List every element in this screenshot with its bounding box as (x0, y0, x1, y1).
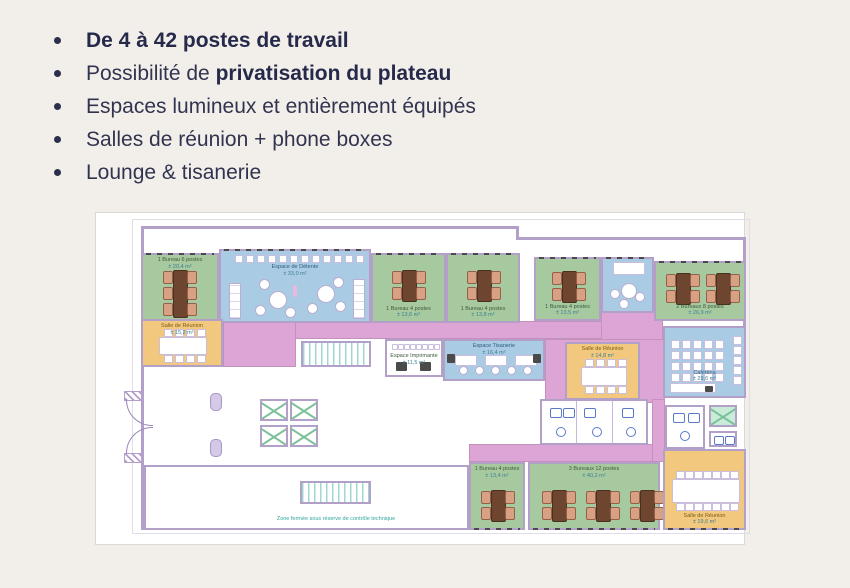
round-table (317, 285, 335, 303)
wall (516, 237, 746, 240)
note-text: Zone fermée sous réserve de contrôle tec… (236, 516, 436, 522)
room-office-4-postes: 1 Bureau 4 postes± 13,8 m² (446, 253, 520, 323)
wall (612, 401, 613, 443)
room-label: 3 Bureaux 12 postes± 40,2 m² (530, 466, 658, 479)
chair (335, 301, 346, 312)
stool (523, 366, 532, 375)
room-label: Cafétéria± 29,6 m² (665, 370, 744, 383)
room-printer: Espace Imprimante± 11,5 m² (385, 339, 443, 377)
floor-plan-image: 1 Bureau 6 postes± 20,4 m² Espace de Dét… (95, 212, 745, 545)
room-label: Espace Tisanerie± 16,4 m² (445, 343, 543, 356)
toilet-icon (688, 413, 700, 423)
cabinet (613, 262, 645, 275)
room-label: 2 Bureaux 8 postes± 26,9 m² (656, 304, 744, 317)
entrance-wall (124, 453, 142, 463)
room-meeting-right: Salle de Réunion± 19,6 m² (663, 449, 746, 530)
bullet-item: De 4 à 42 postes de travail (46, 24, 686, 57)
entrance-door-arc (126, 399, 153, 426)
room-office-6-postes: 1 Bureau 6 postes± 20,4 m² (141, 253, 219, 323)
service-elevator (709, 405, 737, 427)
bullet-item: Espaces lumineux et entièrement équipés (46, 90, 686, 123)
staircase (300, 481, 371, 504)
desk-cluster (542, 488, 576, 524)
desk-cluster (630, 488, 664, 524)
shelf (229, 283, 241, 319)
desk-cluster (666, 271, 700, 307)
elevator (290, 399, 318, 421)
sink-icon (556, 427, 566, 437)
room-label: 1 Bureau 4 postes± 13,8 m² (448, 306, 518, 319)
room-meeting-left: Salle de Réunion± 15,2 m² (141, 319, 223, 367)
desk-cluster (481, 488, 515, 524)
room-lounge-detente: Espace de Détente± 33,0 m² (219, 249, 371, 323)
room-label: 1 Bureau 4 postes± 13,4 m² (471, 466, 523, 479)
room-label: 1 Bureau 4 postes± 13,5 m² (536, 304, 599, 317)
corridor (469, 444, 663, 462)
corridor (223, 321, 296, 367)
sink-icon (626, 427, 636, 437)
room-phone-lounge (601, 257, 654, 313)
room-office-12-postes: 3 Bureaux 12 postes± 40,2 m² (528, 462, 660, 530)
room-meeting-mid: Salle de Réunion± 14,8 m² (565, 342, 640, 400)
shelf (353, 279, 365, 319)
toilet-icon (622, 408, 634, 418)
chair (619, 299, 629, 309)
chair (610, 289, 620, 299)
meeting-table (159, 337, 207, 355)
bullet-item: Salles de réunion + phone boxes (46, 123, 686, 156)
bullet-item: Lounge & tisanerie (46, 156, 686, 189)
room-label: Espace de Détente± 33,0 m² (221, 264, 369, 277)
toilet-icon (550, 408, 562, 418)
sink-icon (680, 431, 690, 441)
desk-cluster (163, 268, 197, 320)
counter (485, 355, 507, 366)
plant (293, 285, 297, 297)
chair (635, 292, 645, 302)
fixture-icon (725, 436, 735, 445)
room-label: Salle de Réunion± 19,6 m² (665, 513, 744, 526)
chair (259, 279, 270, 290)
room-office-4-postes: 1 Bureau 4 postes± 13,4 m² (469, 462, 525, 530)
room-label: Espace Imprimante± 11,5 m² (387, 353, 441, 366)
toilet-icon (584, 408, 596, 418)
coffee-machine-icon (705, 386, 713, 392)
room-office-8-postes: 2 Bureaux 8 postes± 26,9 m² (654, 261, 746, 321)
entrance-door-arc (126, 427, 153, 454)
stool (507, 366, 516, 375)
meeting-table (672, 479, 740, 503)
meeting-table (581, 367, 627, 386)
desk-cluster (392, 268, 426, 304)
staircase (301, 341, 371, 367)
bullet-item: Possibilité de privatisation du plateau (46, 57, 686, 90)
room-tisanerie: Espace Tisanerie± 16,4 m² (443, 339, 545, 381)
chair (307, 303, 318, 314)
room-label: 1 Bureau 6 postes± 20,4 m² (143, 257, 217, 270)
stool (491, 366, 500, 375)
room-cafeteria: Cafétéria± 29,6 m² (663, 326, 746, 398)
elevator (260, 425, 288, 447)
column (210, 393, 222, 411)
room-office-4-postes: 1 Bureau 4 postes± 13,6 m² (371, 253, 446, 323)
desk-cluster (586, 488, 620, 524)
column (210, 439, 222, 457)
chair (333, 277, 344, 288)
fixture-icon (714, 436, 724, 445)
room-label: Salle de Réunion± 15,2 m² (143, 323, 221, 336)
stool (475, 366, 484, 375)
toilet-icon (563, 408, 575, 418)
room-label: 1 Bureau 4 postes± 13,6 m² (373, 306, 444, 319)
chair (285, 307, 296, 318)
sink-icon (592, 427, 602, 437)
counter (455, 355, 477, 366)
toilet-icon (673, 413, 685, 423)
desk-cluster (467, 268, 501, 304)
chair (255, 305, 266, 316)
desk-cluster (706, 271, 740, 307)
wall (576, 401, 577, 443)
desk-cluster (552, 269, 586, 305)
room-label: Salle de Réunion± 14,8 m² (567, 346, 638, 359)
wall (141, 226, 519, 229)
room-office-4-postes: 1 Bureau 4 postes± 13,5 m² (534, 257, 601, 321)
stool (459, 366, 468, 375)
feature-list: De 4 à 42 postes de travailPossibilité d… (46, 24, 686, 189)
bathrooms (665, 405, 705, 449)
round-table (269, 291, 287, 309)
utility-room (709, 431, 737, 447)
elevator (290, 425, 318, 447)
elevator (260, 399, 288, 421)
bathrooms (540, 399, 648, 445)
